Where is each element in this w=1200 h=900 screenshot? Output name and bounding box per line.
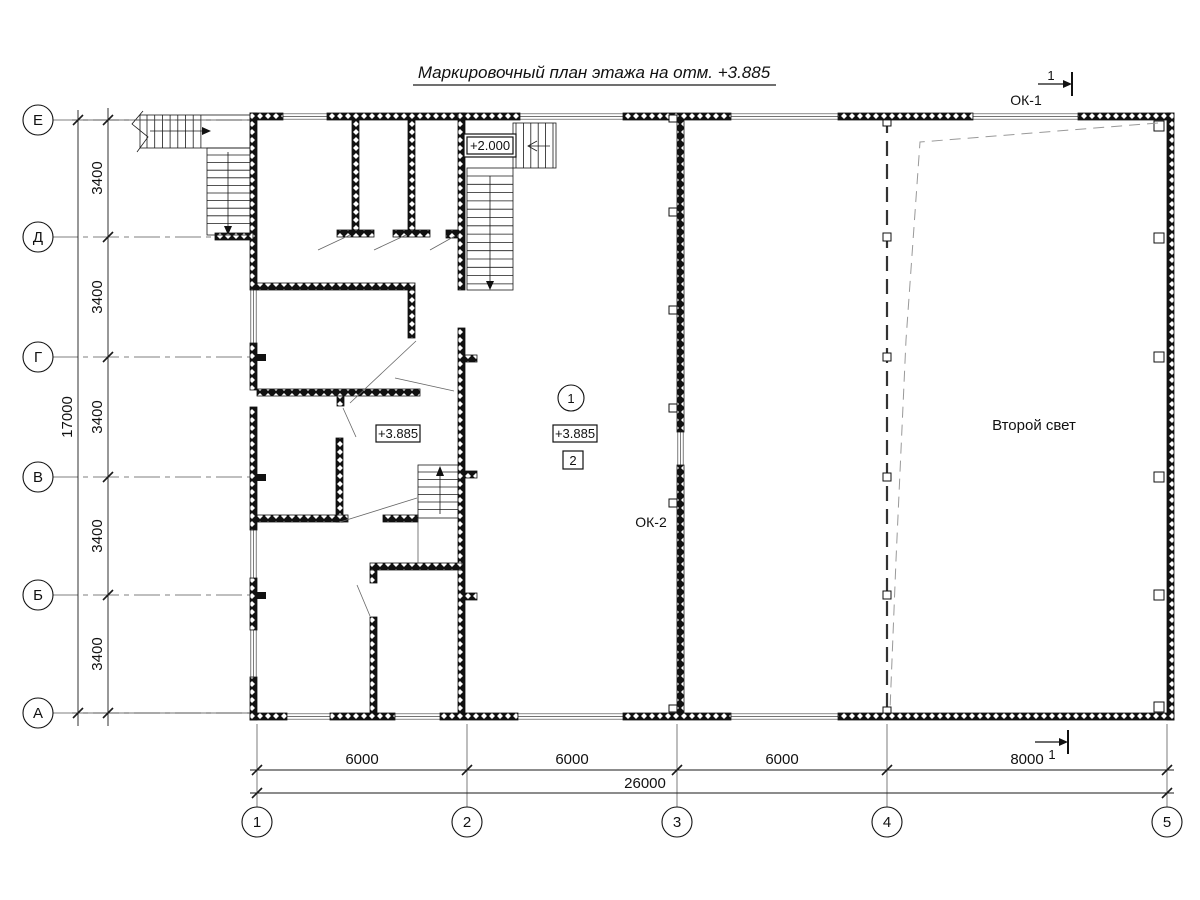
row-axis-bubbles: Е Д Г В Б А bbox=[23, 105, 53, 728]
dimension-lines bbox=[72, 108, 1174, 793]
section-arrow-icon bbox=[1059, 738, 1068, 746]
dim-26000: 26000 bbox=[624, 775, 666, 792]
dim-3400-3: 3400 bbox=[89, 400, 106, 433]
elevation-label-hall: +3.885 bbox=[555, 426, 595, 441]
axis-row-B: Б bbox=[33, 587, 43, 604]
dim-6000-3: 6000 bbox=[765, 751, 798, 768]
stair-direction-arrow-up bbox=[436, 466, 444, 476]
dim-17000: 17000 bbox=[59, 396, 76, 438]
stair-direction-arrow-down bbox=[486, 281, 494, 290]
dim-3400-4: 3400 bbox=[89, 519, 106, 552]
axis-col-2: 2 bbox=[463, 814, 471, 831]
axis-col-3: 3 bbox=[673, 814, 681, 831]
axis-row-E: Е bbox=[33, 112, 43, 129]
drawing-title: Маркировочный план этажа на отм. +3.885 bbox=[418, 63, 771, 82]
interior-walls bbox=[215, 113, 684, 713]
dimension-ticks bbox=[73, 115, 1172, 798]
elevation-label-left: +3.885 bbox=[378, 426, 418, 441]
internal-stair-middle bbox=[418, 465, 458, 563]
axis-row-V: В bbox=[33, 469, 43, 486]
room-number-1: 1 bbox=[567, 391, 574, 406]
dim-3400-1: 3400 bbox=[89, 161, 106, 194]
dim-3400-2: 3400 bbox=[89, 280, 106, 313]
marker-2-label: 2 bbox=[569, 453, 576, 468]
axis-row-G: Г bbox=[34, 349, 42, 366]
axis-row-D: Д bbox=[33, 229, 43, 246]
section-mark-top: 1 bbox=[1038, 68, 1072, 96]
dim-6000-2: 6000 bbox=[555, 751, 588, 768]
dim-6000-1: 6000 bbox=[345, 751, 378, 768]
axis-col-4: 4 bbox=[883, 814, 891, 831]
floor-plan-drawing: Маркировочный план этажа на отм. +3.885 bbox=[0, 0, 1200, 900]
dim-8000: 8000 bbox=[1010, 751, 1043, 768]
section-arrow-icon bbox=[1063, 80, 1072, 88]
title-block: Маркировочный план этажа на отм. +3.885 bbox=[413, 63, 776, 85]
axis-row-A: А bbox=[33, 705, 43, 722]
stair-direction-arrow-right bbox=[202, 127, 211, 135]
window-type-ok2-label: ОК-2 bbox=[635, 514, 667, 530]
external-stair bbox=[132, 111, 250, 235]
annotations: ОК-1 ОК-2 Второй свет +3.885 1 +3.885 2 … bbox=[376, 68, 1076, 762]
internal-stair-top: +2.000 bbox=[464, 123, 556, 290]
section-number-bottom: 1 bbox=[1048, 747, 1055, 762]
column-axis-bubbles: 1 2 3 4 5 bbox=[242, 807, 1182, 837]
dim-3400-5: 3400 bbox=[89, 637, 106, 670]
second-light-label: Второй свет bbox=[992, 417, 1076, 434]
axis-col-1: 1 bbox=[253, 814, 261, 831]
window-type-ok1-label: ОК-1 bbox=[1010, 92, 1042, 108]
section-number-top: 1 bbox=[1047, 68, 1054, 83]
axis-col-5: 5 bbox=[1163, 814, 1171, 831]
elevation-label-stair: +2.000 bbox=[470, 138, 510, 153]
